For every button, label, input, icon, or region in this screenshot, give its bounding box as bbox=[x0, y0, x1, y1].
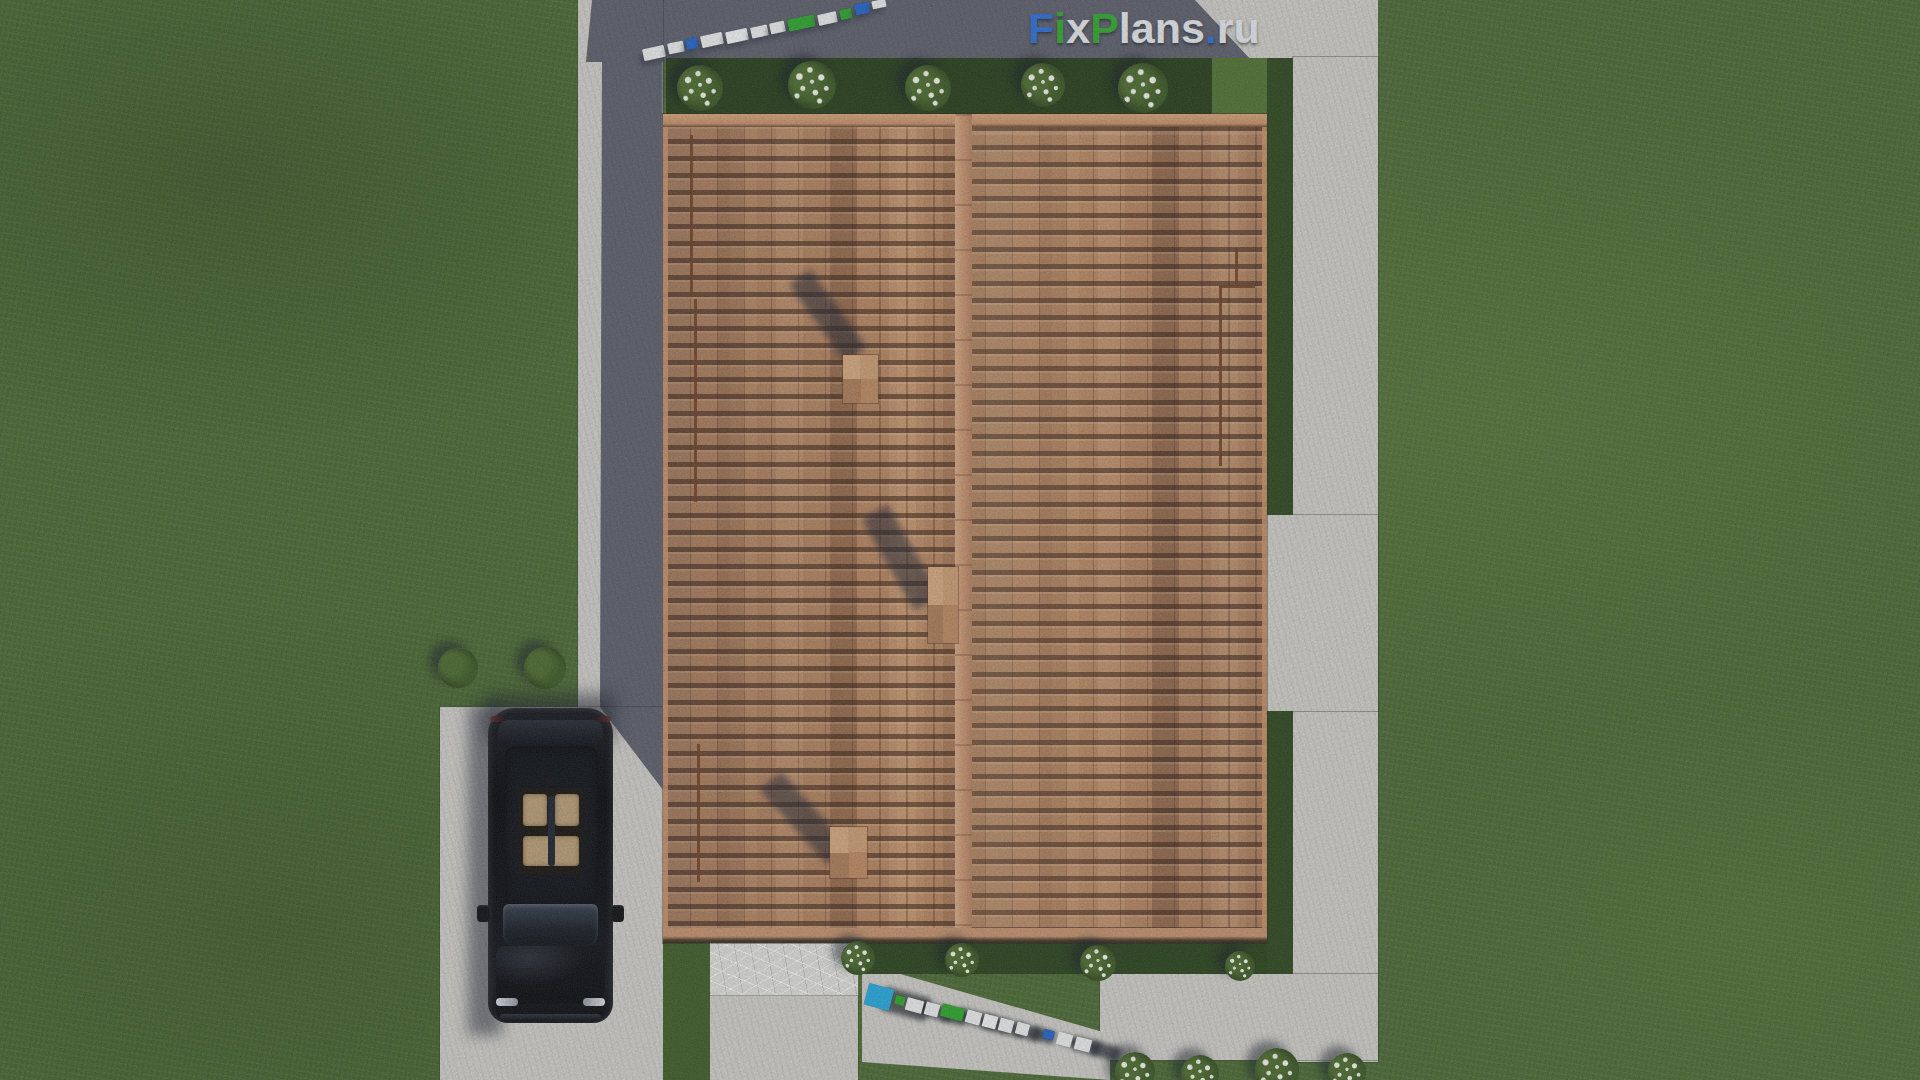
roof-rail bbox=[694, 299, 697, 502]
car-console bbox=[548, 796, 555, 866]
car-headlight-icon bbox=[496, 998, 518, 1006]
site-watermark: FixPlans.ru bbox=[1028, 4, 1260, 50]
car-headlight-icon bbox=[583, 998, 605, 1006]
bush bbox=[524, 647, 566, 689]
bush bbox=[1118, 63, 1168, 113]
car-roof-glass bbox=[505, 746, 598, 906]
side-patio bbox=[1267, 515, 1378, 711]
car-taillight-icon bbox=[597, 716, 611, 722]
brand-letter: P bbox=[1090, 4, 1119, 52]
brand-letter: ru bbox=[1217, 4, 1260, 52]
car-seat bbox=[555, 794, 579, 826]
bush bbox=[438, 648, 478, 688]
bush bbox=[677, 65, 723, 111]
roof-right-slope bbox=[972, 127, 1267, 928]
roof-left-edge bbox=[663, 127, 668, 928]
brand-letter: i bbox=[1054, 4, 1066, 52]
bottom-garden-bed bbox=[860, 941, 1267, 974]
roof-rail bbox=[1219, 286, 1222, 466]
chimney-cap bbox=[843, 355, 878, 403]
bush bbox=[945, 943, 979, 977]
roof-right-edge bbox=[1262, 127, 1267, 928]
chimney-cap bbox=[830, 827, 867, 878]
chimney-cap bbox=[928, 567, 958, 643]
bush bbox=[1021, 63, 1065, 107]
grass-gap-strip bbox=[663, 943, 710, 1080]
brand-letter: F bbox=[1028, 4, 1054, 52]
bush bbox=[788, 61, 836, 109]
car-taillight-icon bbox=[490, 716, 504, 722]
brand-letter: lans bbox=[1119, 4, 1205, 52]
corner-grass-patch bbox=[1212, 58, 1267, 116]
roof-ridge bbox=[955, 114, 972, 930]
brand-letter: x bbox=[1066, 4, 1090, 52]
brand-letter: . bbox=[1205, 4, 1217, 52]
bush bbox=[905, 65, 951, 111]
roof-rail bbox=[697, 744, 700, 882]
car-windshield bbox=[503, 904, 598, 946]
parked-car bbox=[488, 708, 613, 1023]
right-garden-strip-2 bbox=[1267, 711, 1293, 974]
car-mirror bbox=[611, 905, 624, 922]
bottom-right-patio bbox=[1100, 974, 1378, 1060]
car-rear-window bbox=[498, 720, 603, 744]
aerial-house-render: FixPlans.ru bbox=[0, 0, 1920, 1080]
house-roof bbox=[663, 114, 1267, 943]
entrance-marble-step bbox=[710, 943, 858, 995]
roof-rail bbox=[690, 135, 693, 297]
bush bbox=[1225, 951, 1255, 981]
roof-bottom-eave bbox=[663, 928, 1267, 943]
bush bbox=[1080, 945, 1116, 981]
roof-rail bbox=[1219, 285, 1255, 288]
car-seat bbox=[523, 794, 547, 826]
car-hood bbox=[496, 946, 605, 1004]
bush bbox=[841, 941, 875, 975]
car-front-bumper bbox=[500, 1014, 601, 1021]
right-garden-strip bbox=[1267, 58, 1293, 515]
roof-rail bbox=[1235, 248, 1238, 288]
car-mirror bbox=[477, 905, 490, 922]
car-interior bbox=[519, 788, 583, 874]
